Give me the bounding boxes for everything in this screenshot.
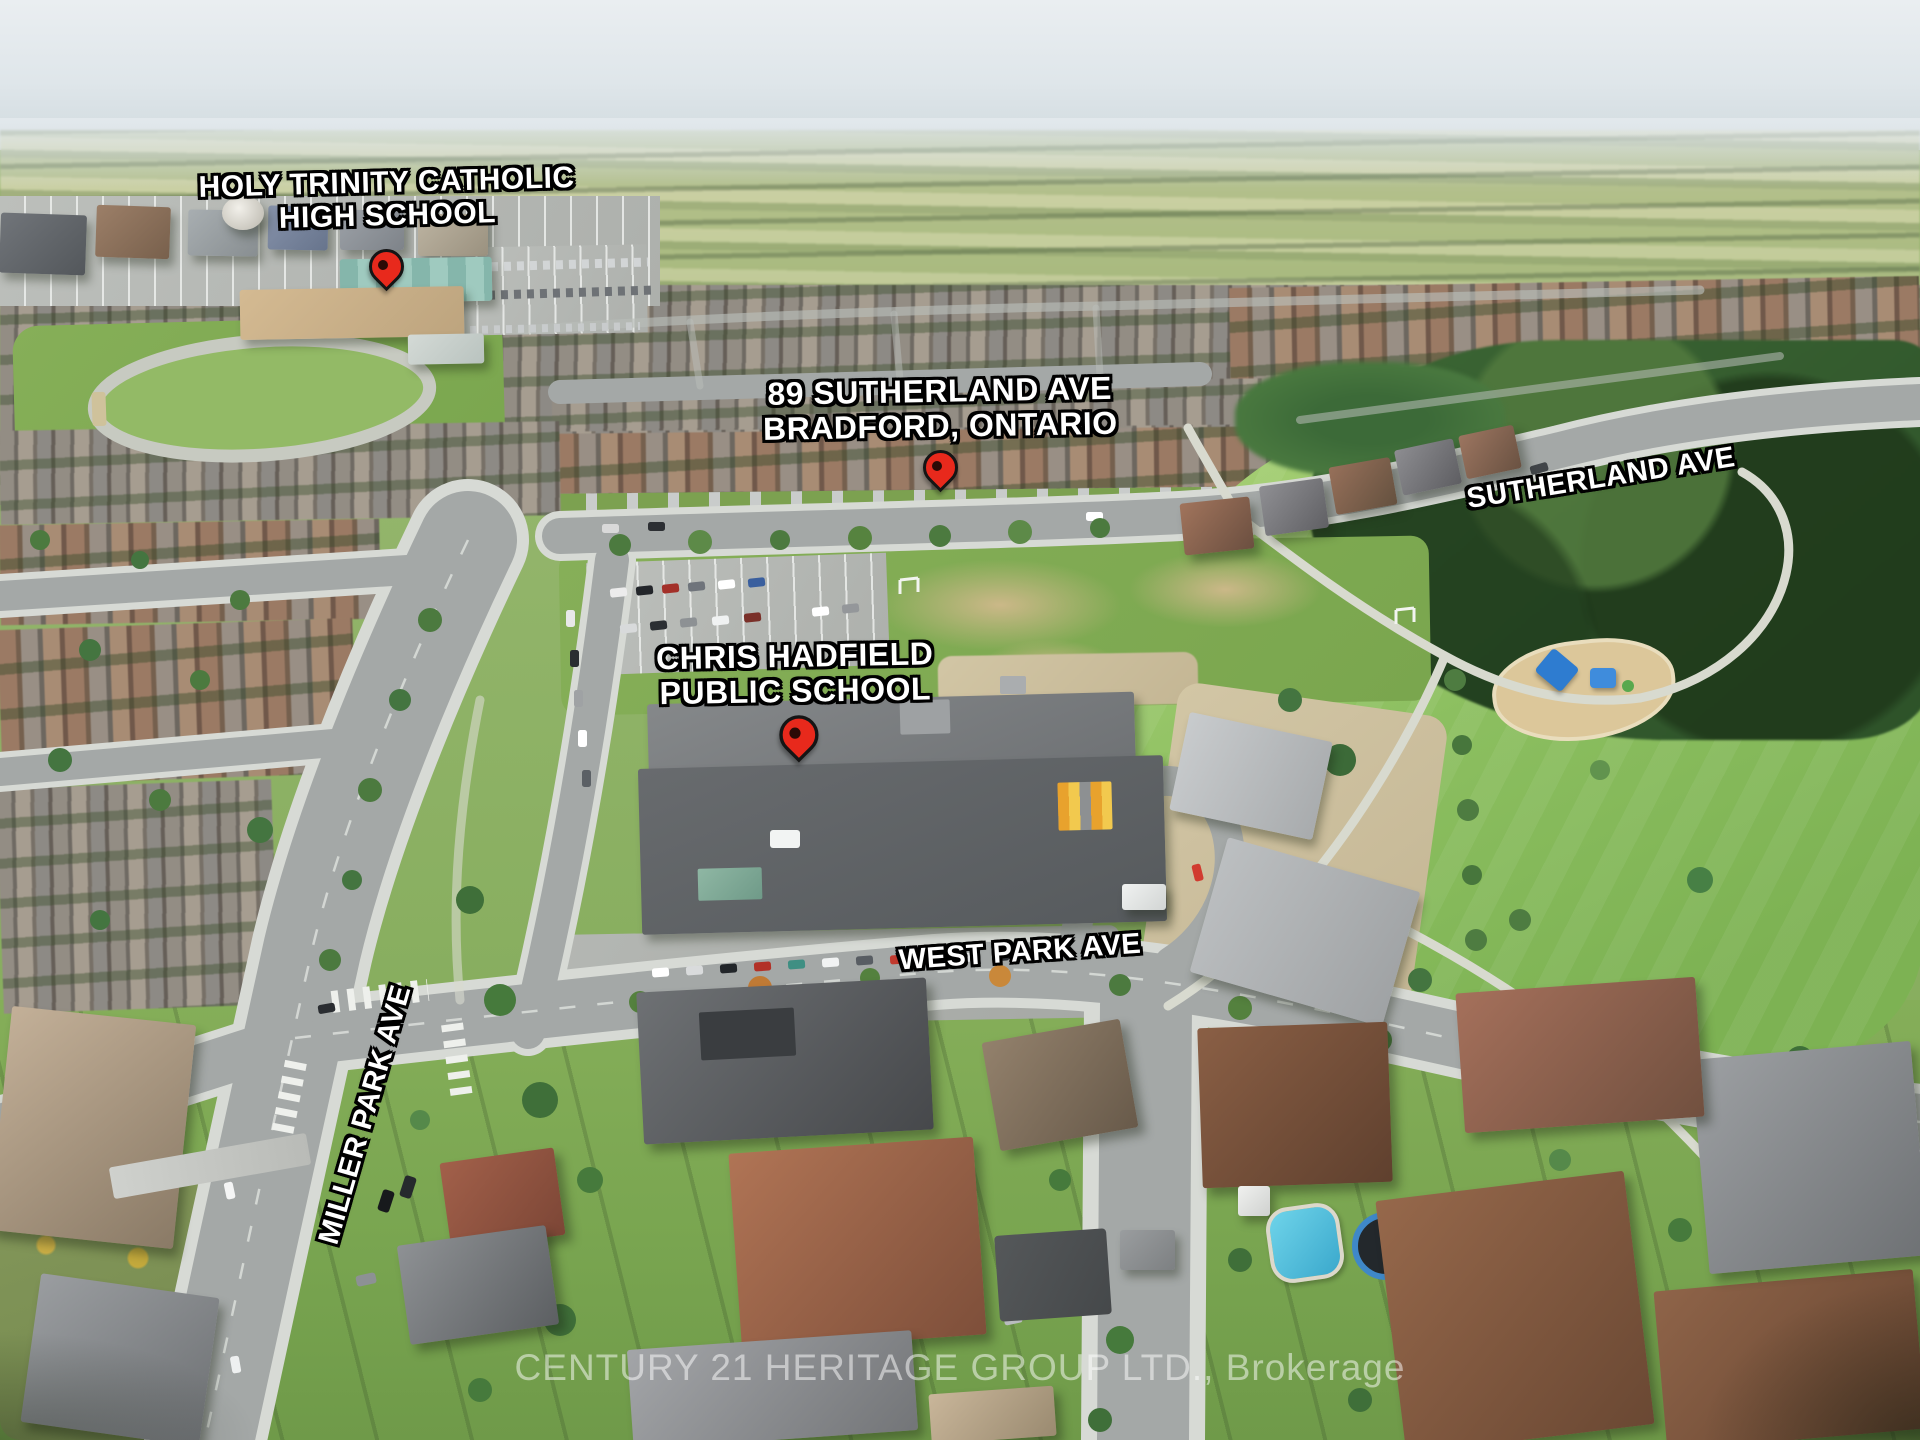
pin-89-sutherland-ave — [920, 448, 954, 498]
swimming-pool — [1263, 1200, 1347, 1286]
running-track — [90, 329, 433, 466]
house — [1691, 1041, 1920, 1274]
house — [1179, 496, 1254, 555]
house — [1197, 1022, 1392, 1189]
playground-structure — [1622, 680, 1634, 692]
label-holy-trinity: HOLY TRINITY CATHOLIC HIGH SCHOOL — [198, 161, 576, 237]
portable-classrooms — [408, 333, 485, 364]
house — [0, 1006, 196, 1249]
school-yellow-facade — [1057, 781, 1112, 830]
pin-chris-hadfield-public-school — [776, 713, 814, 769]
faint-suburb-streets — [520, 290, 1780, 420]
label-line: BRADFORD, ONTARIO — [763, 406, 1118, 447]
house — [1259, 478, 1329, 536]
house — [1455, 977, 1704, 1133]
pin-dot — [378, 260, 388, 270]
pool-shed — [1238, 1186, 1270, 1216]
playground-structure — [1590, 668, 1616, 688]
school-entrance-glass — [698, 867, 763, 901]
commercial-building — [95, 205, 171, 260]
rooftop-vehicle — [770, 830, 800, 848]
high-school-building — [240, 286, 465, 340]
commercial-building — [0, 213, 87, 276]
house — [20, 1273, 219, 1440]
pin-dot — [789, 728, 800, 739]
house — [636, 978, 934, 1145]
house — [1375, 1171, 1654, 1440]
label-subject-property: 89 SUTHERLAND AVE BRADFORD, ONTARIO — [762, 371, 1118, 448]
house — [397, 1225, 559, 1345]
aerial-photo: HOLY TRINITY CATHOLIC HIGH SCHOOL 89 SUT… — [0, 0, 1920, 1440]
label-line: PUBLIC SCHOOL — [656, 672, 934, 712]
house — [928, 1386, 1056, 1440]
brokerage-watermark: CENTURY 21 HERITAGE GROUP LTD., Brokerag… — [515, 1347, 1406, 1389]
house — [728, 1137, 986, 1352]
rear-driveway — [994, 1228, 1112, 1322]
solar-panels — [699, 1008, 796, 1061]
label-chris-hadfield: CHRIS HADFIELD PUBLIC SCHOOL — [656, 636, 934, 711]
shed — [1120, 1230, 1175, 1270]
pin-holy-trinity-high-school — [366, 247, 400, 297]
pin-dot — [932, 461, 942, 471]
rooftop-unit — [1000, 676, 1026, 694]
trailer — [1122, 884, 1166, 910]
long-jump-strip — [91, 392, 106, 426]
house — [1654, 1269, 1920, 1440]
